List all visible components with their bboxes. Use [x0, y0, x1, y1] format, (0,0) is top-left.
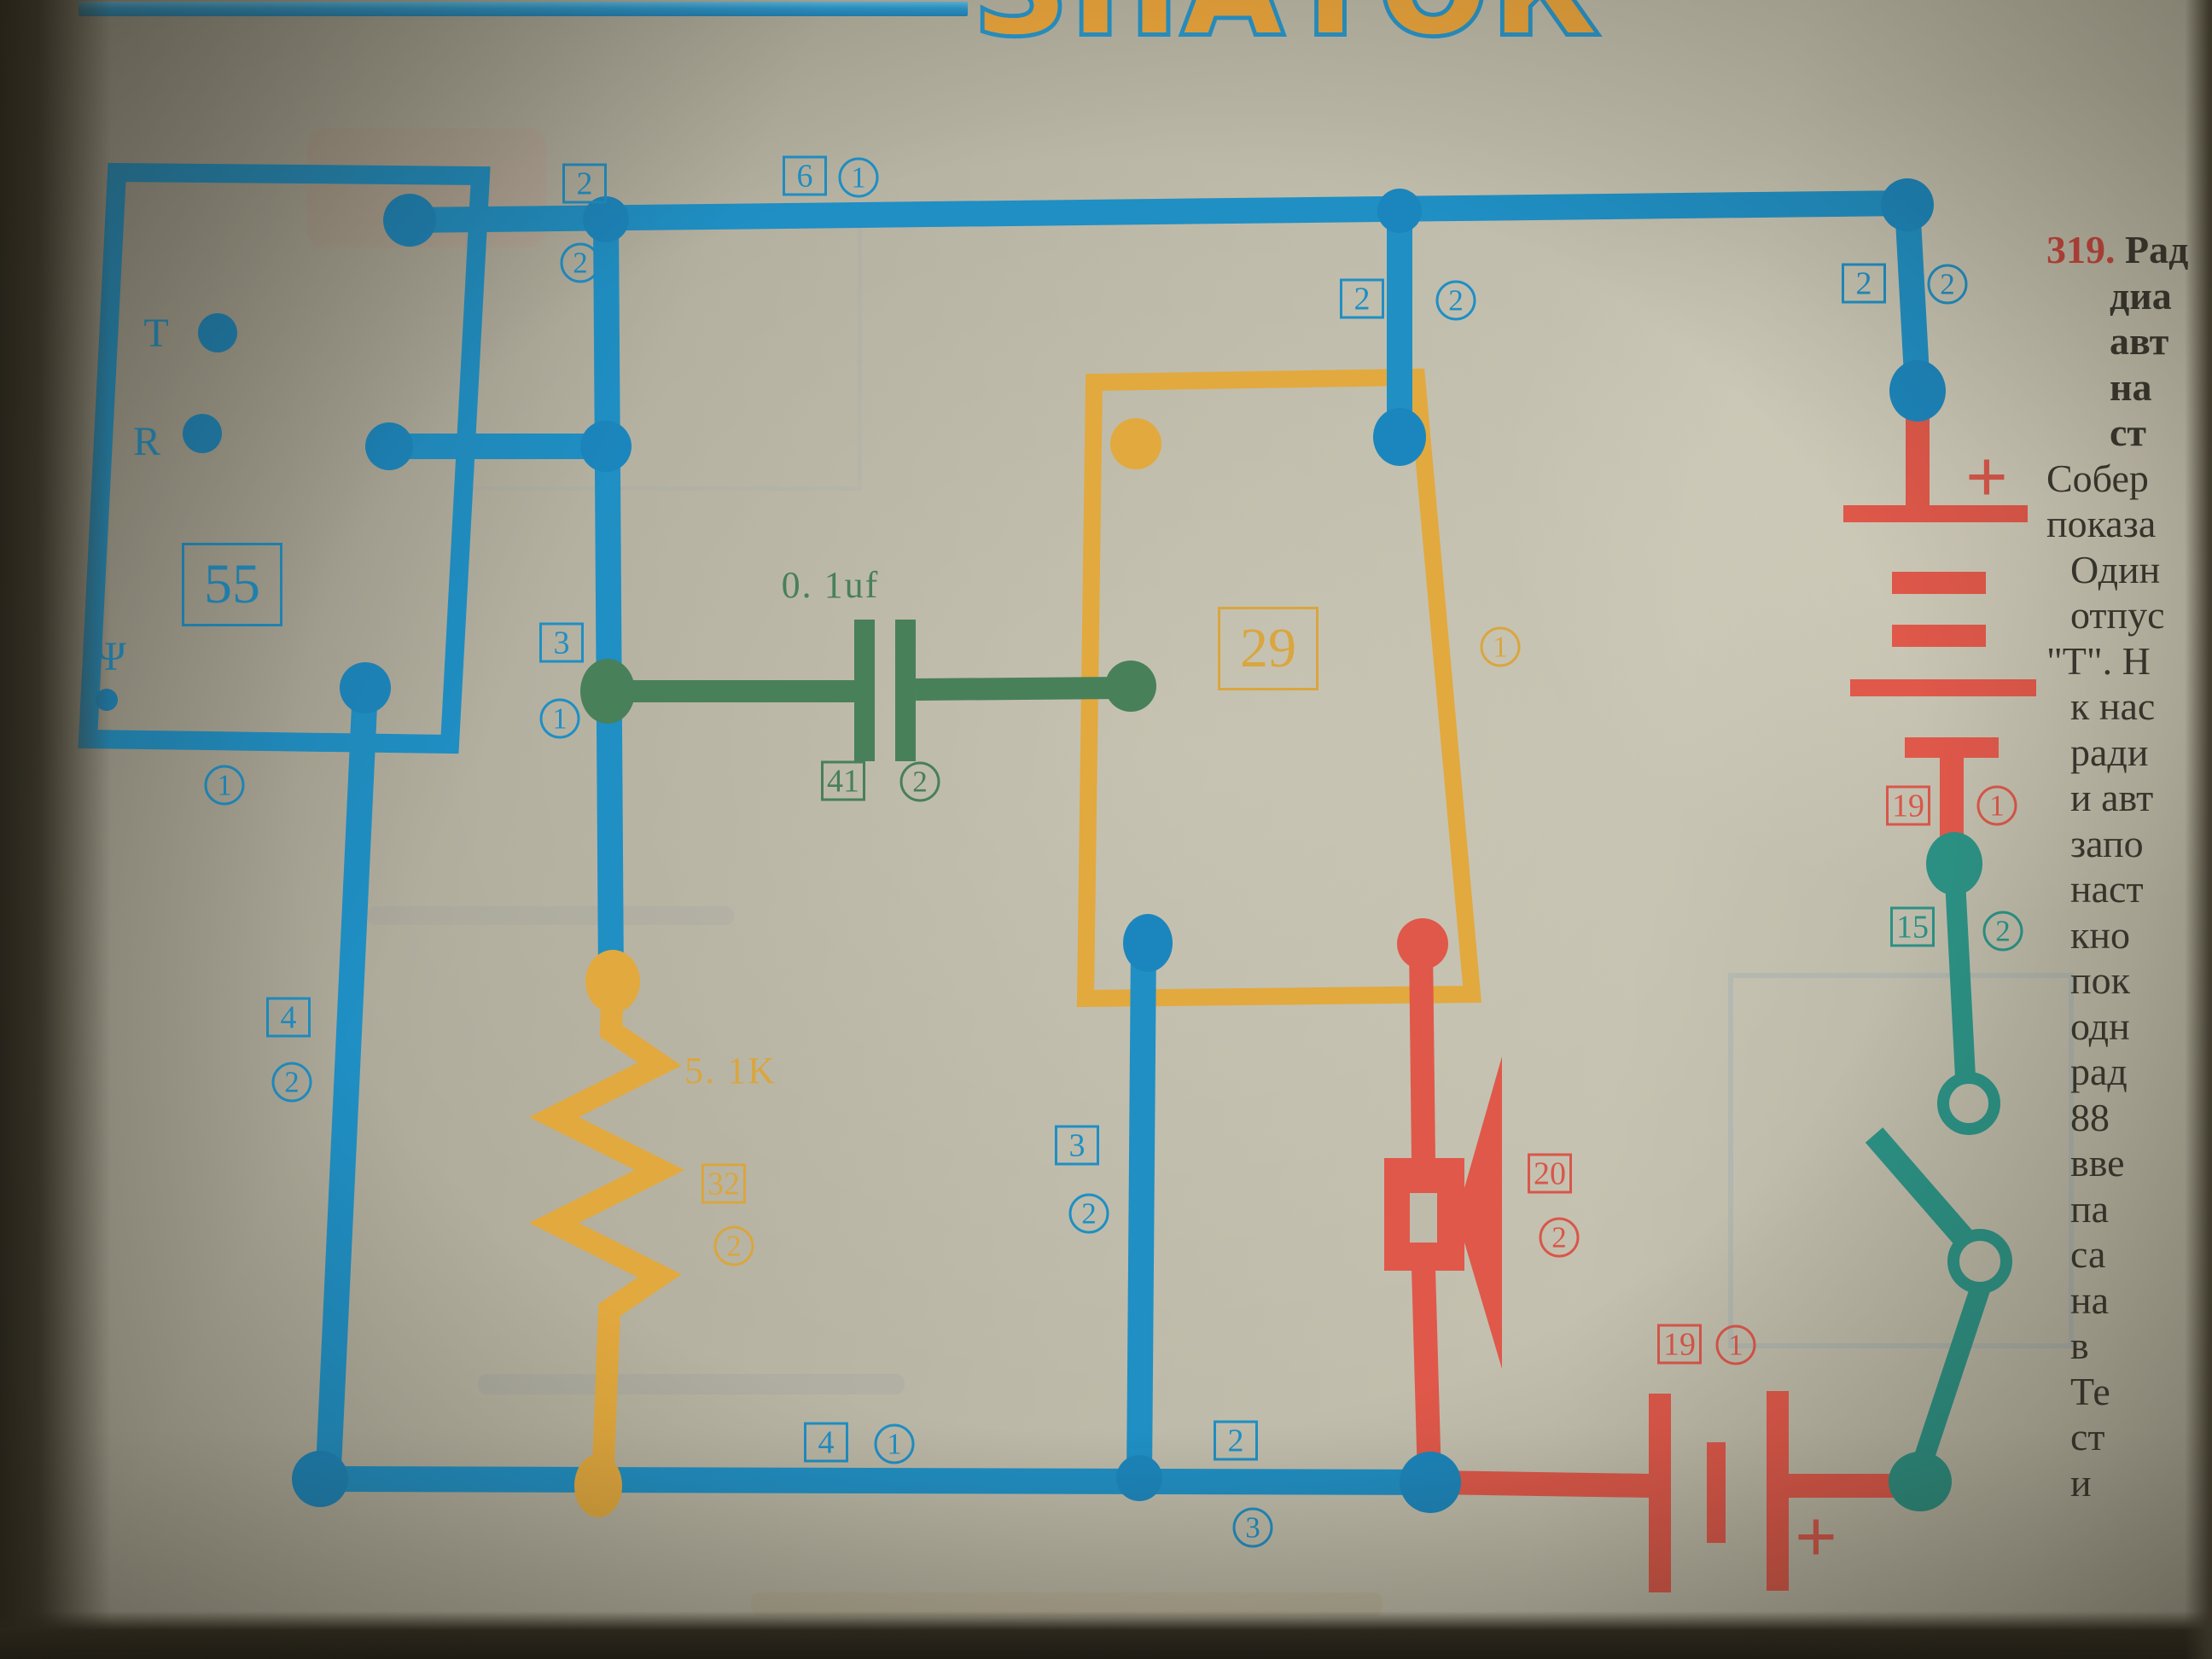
article-line: на	[2046, 364, 2212, 410]
article-line: "Т". Н	[2046, 638, 2212, 684]
node	[292, 1451, 348, 1507]
wire-qty-circle: 1	[875, 1424, 915, 1464]
node-yellow	[1110, 418, 1161, 469]
node	[1400, 1452, 1461, 1513]
capacitor-id-box: 41	[821, 761, 865, 801]
battery-id-box: 19	[1886, 786, 1930, 826]
article-line: одн	[2046, 1004, 2212, 1050]
wire-id-box: 6	[783, 156, 827, 196]
wire-id-box: 3	[1055, 1126, 1099, 1166]
speaker-cone	[1464, 1057, 1502, 1369]
article-line: на	[2046, 1278, 2212, 1324]
article-line: наст	[2046, 866, 2212, 912]
switch-wire-bottom	[1920, 1287, 1981, 1470]
speaker-wire-bottom	[1423, 1268, 1429, 1479]
block29-qty-circle: 1	[1481, 627, 1521, 667]
wire-id-box: 2	[1340, 279, 1384, 319]
article-line: вве	[2046, 1140, 2212, 1186]
node	[1373, 408, 1426, 466]
article-line: па	[2046, 1186, 2212, 1232]
switch-qty-circle: 2	[1983, 911, 2023, 952]
article-line: показа	[2046, 501, 2212, 547]
article-line: 319. Рад	[2046, 227, 2212, 273]
node	[580, 421, 632, 472]
switch-lever	[1874, 1135, 1965, 1240]
node-yellow	[574, 1454, 622, 1517]
battery-plus-sign: +	[1795, 1500, 1837, 1575]
node-teal	[1926, 832, 1982, 895]
switch-id-box: 15	[1890, 907, 1935, 947]
wire-block29-out	[1139, 943, 1144, 1478]
battery-bottom-plate-short	[1707, 1442, 1726, 1543]
resistor-zigzag	[554, 981, 660, 1486]
node	[1889, 360, 1946, 422]
wire-left-drop	[329, 688, 365, 1468]
battery-bottom-plate-long2	[1767, 1391, 1789, 1591]
pin-r-label: R	[133, 422, 160, 463]
article-number: 319.	[2046, 228, 2116, 271]
node	[383, 194, 436, 247]
node	[1116, 1455, 1162, 1501]
article-text: 319. Рад диа авт на ст Собер показа Один…	[2046, 227, 2212, 1505]
resistor-value: 5. 1K	[684, 1052, 777, 1090]
article-line: са	[2046, 1231, 2212, 1278]
node-yellow	[585, 950, 640, 1013]
battery-id-box: 19	[1657, 1324, 1702, 1365]
article-line: 88	[2046, 1095, 2212, 1141]
article-line: ради	[2046, 730, 2212, 776]
article-line: ст	[2046, 410, 2212, 456]
wire-qty-circle: 1	[205, 765, 245, 806]
battery-qty-circle: 1	[1716, 1325, 1756, 1365]
resistor-id-box: 32	[701, 1164, 746, 1204]
article-line: диа	[2046, 273, 2212, 319]
node	[340, 662, 391, 713]
wire-qty-circle: 2	[272, 1062, 312, 1103]
node-green	[1105, 661, 1156, 712]
switch-wire-top	[1954, 864, 1965, 1077]
wire-qty-circle: 2	[561, 243, 601, 283]
wire-qty-circle: 2	[1436, 281, 1476, 321]
block29-id: 29	[1218, 607, 1318, 690]
node-green	[580, 659, 635, 724]
article-line: рад	[2046, 1049, 2212, 1095]
article-line: в	[2046, 1323, 2212, 1369]
wire-ladder	[606, 219, 611, 981]
capacitor-value: 0. 1uf	[782, 567, 880, 604]
pin-r-dot	[183, 414, 222, 453]
battery-top-plate-short1	[1892, 572, 1986, 594]
node-red	[1397, 918, 1448, 969]
article-line: ст	[2046, 1414, 2212, 1460]
wire-qty-circle: 3	[1233, 1508, 1273, 1548]
article-line: Собер	[2046, 456, 2212, 502]
wire-qty-circle: 2	[1069, 1194, 1109, 1234]
wire-qty-circle: 1	[540, 699, 580, 739]
antenna-dot	[96, 689, 118, 711]
pin-t-dot	[198, 313, 237, 352]
wire-id-box: 2	[1842, 264, 1886, 304]
switch-contact-top	[1943, 1078, 1994, 1129]
capacitor-plate-left	[854, 620, 875, 761]
battery-plus-sign: +	[1965, 440, 2008, 515]
speaker-wire-top	[1421, 944, 1423, 1161]
wire-id-box: 4	[266, 998, 311, 1038]
wire-top-rail	[410, 203, 1907, 220]
node-teal	[1889, 1452, 1952, 1511]
wire-id-box: 2	[562, 164, 607, 204]
battery-top-plate-long2	[1850, 679, 2036, 696]
switch-contact-bottom	[1953, 1235, 2006, 1288]
speaker-body-hole	[1410, 1193, 1437, 1243]
article-line: авт	[2046, 318, 2212, 364]
resistor-qty-circle: 2	[714, 1226, 754, 1266]
article-line: запо	[2046, 821, 2212, 867]
article-line: отпус	[2046, 592, 2212, 638]
wire-qty-circle: 1	[839, 158, 879, 198]
wire-id-box: 4	[804, 1423, 848, 1463]
wire-bottom-rail	[320, 1479, 1430, 1482]
capacitor-plate-right	[895, 620, 916, 761]
wire-qty-circle: 2	[1928, 265, 1968, 305]
wire-id-box: 2	[1214, 1421, 1258, 1461]
node	[1377, 189, 1422, 233]
article-line: Один	[2046, 547, 2212, 593]
battery-qty-circle: 1	[1977, 786, 2017, 826]
pin-t-label: T	[143, 313, 168, 354]
antenna-icon: Ψ	[96, 637, 125, 678]
article-line: и авт	[2046, 775, 2212, 821]
node	[365, 422, 413, 470]
node	[1123, 914, 1173, 972]
battery-top-plate-end	[1905, 737, 1999, 758]
wire-id-box: 3	[539, 623, 584, 663]
wire-red-bottom-left	[1430, 1482, 1650, 1486]
battery-bottom-plate-long1	[1649, 1394, 1671, 1592]
capacitor-wire-right	[916, 688, 1131, 690]
article-line: пок	[2046, 958, 2212, 1004]
article-line: и	[2046, 1460, 2212, 1506]
capacitor-qty-circle: 2	[900, 762, 940, 802]
circuit-diagram	[0, 0, 2212, 1659]
block55-id: 55	[182, 543, 282, 626]
article-line: к нас	[2046, 684, 2212, 730]
speaker-id-box: 20	[1528, 1154, 1572, 1194]
node	[1881, 178, 1934, 231]
article-line: Те	[2046, 1369, 2212, 1415]
battery-top-plate-short2	[1892, 625, 1986, 647]
article-line: кно	[2046, 912, 2212, 958]
book-page-photo: ЗНАТОК ЗНАТОК	[0, 0, 2212, 1659]
speaker-qty-circle: 2	[1540, 1218, 1580, 1258]
